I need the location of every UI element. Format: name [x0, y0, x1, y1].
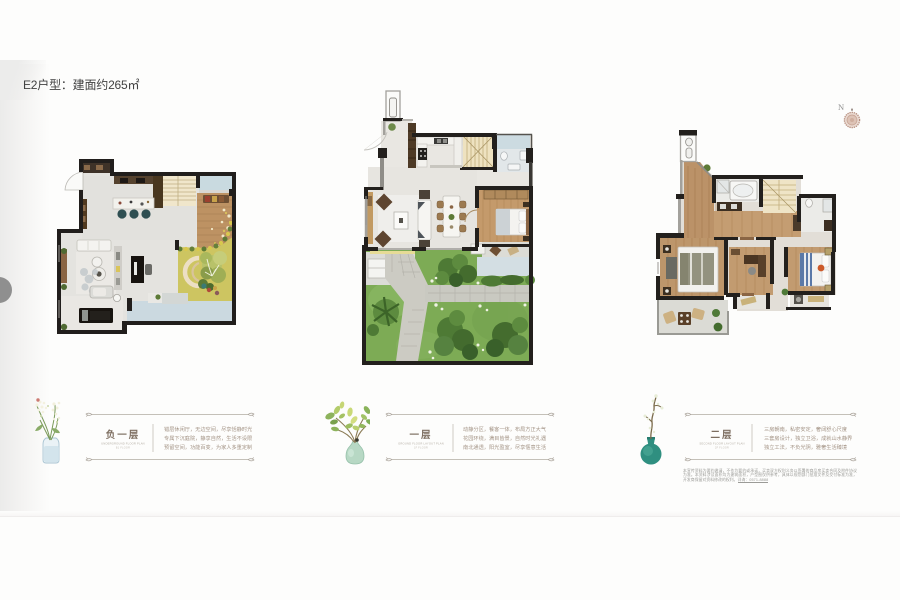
- svg-text:B1 FLOOR: B1 FLOOR: [116, 447, 130, 450]
- svg-text:预留空间，功能百变，为家人多重定制: 预留空间，功能百变，为家人多重定制: [164, 443, 252, 451]
- svg-text:负一层: 负一层: [106, 429, 141, 441]
- svg-text:独立工法，不负光阴，雅奢生活臻境: 独立工法，不负光阴，雅奢生活臻境: [764, 443, 847, 451]
- svg-text:专属下沉庭院，静享自然，生活不设限: 专属下沉庭院，静享自然，生活不设限: [164, 434, 252, 442]
- svg-text:2F FLOOR: 2F FLOOR: [715, 447, 729, 450]
- svg-text:N: N: [838, 102, 844, 112]
- svg-text:1F FLOOR: 1F FLOOR: [414, 447, 428, 450]
- svg-text:三房朝南，私密安定，奢阔舒心尺度: 三房朝南，私密安定，奢阔舒心尺度: [764, 425, 847, 433]
- svg-text:二层: 二层: [710, 430, 733, 441]
- svg-text:一层: 一层: [409, 430, 432, 441]
- svg-text:错层休闲厅，无边空间，尽享恬静时光: 错层休闲厅，无边空间，尽享恬静时光: [164, 425, 252, 433]
- svg-text:SECOND FLOOR LAYOUT PLAN: SECOND FLOOR LAYOUT PLAN: [699, 442, 744, 446]
- svg-text:南北通透，阳光盈室，尽享惬意生活: 南北通透，阳光盈室，尽享惬意生活: [463, 443, 546, 451]
- svg-text:GROUND FLOOR LAYOUT PLAN: GROUND FLOOR LAYOUT PLAN: [398, 442, 444, 446]
- svg-text:UNDERGROUND FLOOR PLAN: UNDERGROUND FLOOR PLAN: [101, 442, 145, 446]
- svg-text:动静分区，餐客一体，布局方正大气: 动静分区，餐客一体，布局方正大气: [463, 425, 546, 433]
- svg-text:花园环绕，满目皆景，自然时光礼遇: 花园环绕，满目皆景，自然时光礼遇: [463, 434, 546, 442]
- svg-text:三套房设计，独立卫浴，成就山水静界: 三套房设计，独立卫浴，成就山水静界: [764, 434, 852, 442]
